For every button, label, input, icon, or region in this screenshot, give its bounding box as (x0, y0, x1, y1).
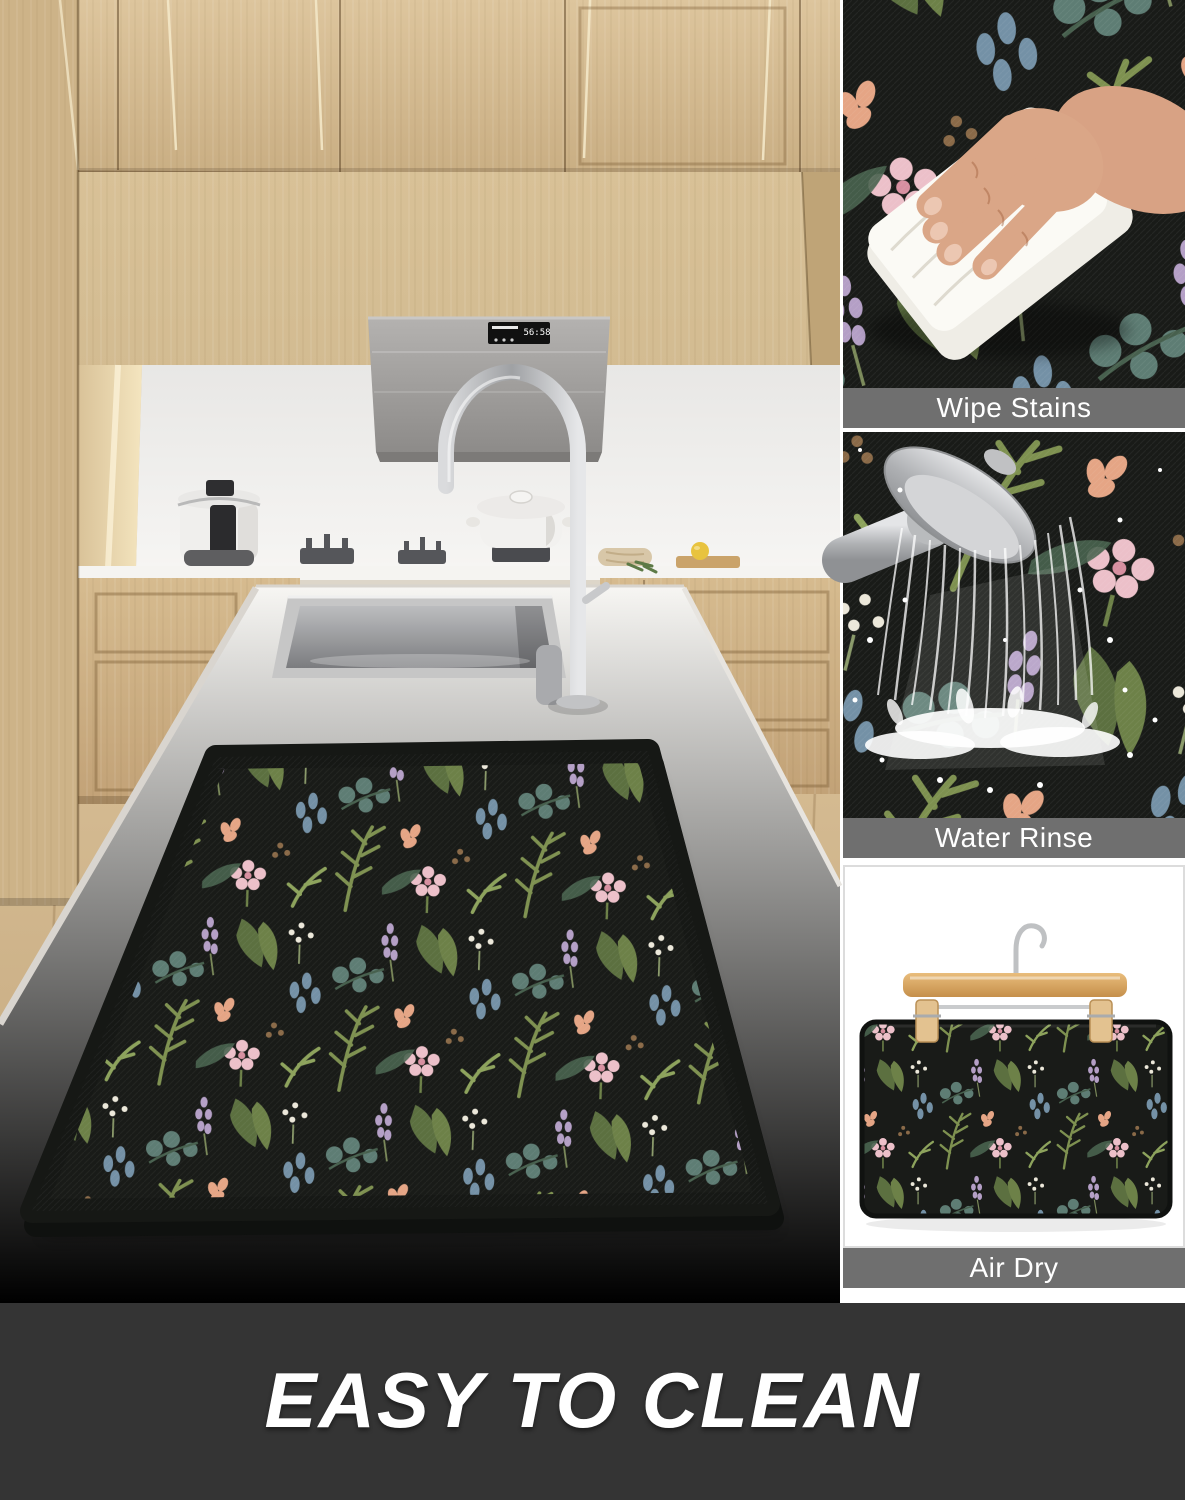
bottom-banner: EASY TO CLEAN (0, 1303, 1185, 1500)
panel-water-rinse (843, 425, 1185, 818)
caption-water-rinse: Water Rinse (843, 818, 1185, 858)
caption-air-dry: Air Dry (843, 1248, 1185, 1288)
hood-display: 56:58 (488, 322, 551, 344)
pressure-cooker (178, 480, 260, 566)
caption-air-dry-text: Air Dry (969, 1254, 1058, 1282)
banner-headline: EASY TO CLEAN (265, 1355, 921, 1446)
hood-display-reading: 56:58 (523, 328, 550, 338)
kitchen-scene: 56:58 (0, 0, 840, 1303)
caption-water-rinse-text: Water Rinse (935, 824, 1094, 852)
product-image: 56:58 (0, 0, 1185, 1500)
kitchen-sink (272, 597, 566, 678)
gas-burner-right (398, 537, 446, 564)
gas-burner-left (300, 534, 354, 564)
panel-air-dry (844, 866, 1184, 1247)
upper-cabinets (0, 0, 840, 178)
hanging-mat (862, 1022, 1170, 1216)
panel-wipe-stains (843, 0, 1185, 388)
caption-wipe-stains: Wipe Stains (843, 388, 1185, 428)
caption-wipe-stains-text: Wipe Stains (937, 394, 1092, 422)
tall-cabinet-left (0, 0, 78, 906)
